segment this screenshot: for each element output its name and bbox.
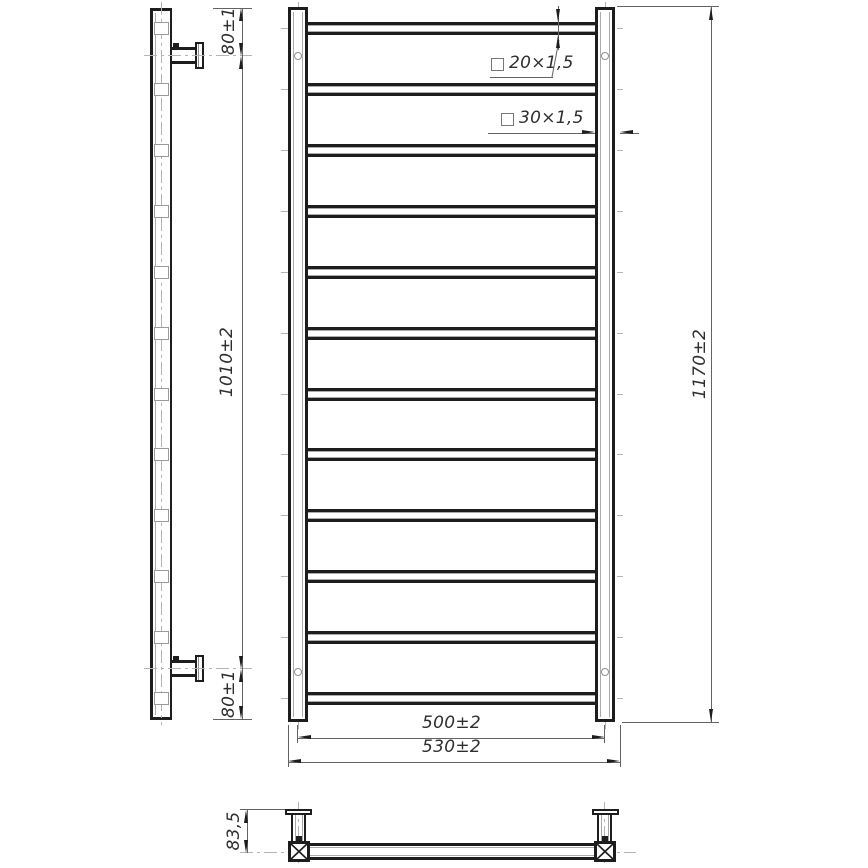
rung-section-square [154,388,169,401]
post-size-dim-line [488,133,595,134]
dim-arrow [239,56,243,69]
bottom-bracket-set-screw [173,656,179,660]
extension-line [622,722,719,723]
rung-bar [308,22,595,35]
mounting-hole [294,668,302,676]
rung-section-square [154,692,169,705]
bracket-stem [597,815,599,841]
right-post [595,7,615,722]
rung-tube-size-label: 20×1,5 [509,53,574,73]
dim-arrow [592,735,605,739]
square-section-icon [491,58,504,71]
dim-label-bracket-span: 1010±2 [217,317,237,407]
rung-section-square [154,570,169,583]
rung-section-square [154,83,169,96]
mounting-hole [294,52,302,60]
dim-label-overall-width: 530±2 [389,737,514,757]
dim-arrow [582,130,595,134]
post-section-square [288,841,310,862]
rung-bar [308,205,595,218]
bracket-stem [610,815,612,841]
height-dim-line [711,7,712,722]
rung-section-square [154,144,169,157]
side-rail-centerline [161,2,162,725]
dim-label-post-centers: 500±2 [389,713,514,733]
rung-bar [308,692,595,705]
rung-bar [308,266,595,279]
cross-brace-icon [594,841,616,862]
rung-section-square [154,22,169,35]
bracket-stem-line [608,815,609,841]
extension-line [617,6,719,7]
rung-section-square [154,205,169,218]
rung-section-square [154,448,169,461]
top-bracket-arm [172,47,196,50]
rung-bar [308,388,595,401]
bracket-stem [304,815,306,841]
dim-arrow [244,840,248,853]
cross-brace-icon [288,841,310,862]
dim-label-wall-offset: 83,5 [224,801,244,861]
rung-bar [308,448,595,461]
mounting-hole [601,668,609,676]
mounting-hole [601,52,609,60]
dim-arrow [556,35,560,48]
dim-arrow [244,810,248,823]
dim-arrow [288,759,301,763]
side-dim-line [242,8,243,719]
top-rail-tube [309,843,594,860]
bracket-stem-line [302,815,303,841]
dim-arrow [607,759,620,763]
rung-bar [308,570,595,583]
rung-section-square [154,266,169,279]
bottom-bracket-arm [172,674,196,677]
post-section-square [594,841,616,862]
post-tube-size-label: 30×1,5 [519,108,584,128]
rung-section-square [154,327,169,340]
dim-arrow [239,706,243,719]
dim-arrow [239,8,243,21]
dim-arrow [556,9,560,22]
left-post [288,7,308,722]
rung-bar [308,631,595,644]
square-section-icon [501,113,514,126]
extension-line [604,725,605,743]
overall-width-dim-line [288,762,620,763]
dim-arrow [709,7,713,20]
top-bracket-set-screw [173,43,179,47]
dim-arrow [239,43,243,56]
dim-label-overall-height: 1170±2 [690,318,710,410]
rung-bar [308,327,595,340]
dim-arrow [620,130,633,134]
dim-arrow [239,656,243,669]
bracket-stem [291,815,293,841]
rung-bar [308,509,595,522]
rung-section-square [154,509,169,522]
dim-label-bottom-offset: 80±1 [219,664,239,724]
dim-arrow [239,669,243,682]
rung-section-square [154,631,169,644]
dim-label-top-offset: 80±1 [219,1,239,61]
leader-line [544,36,564,81]
wall-flange [285,809,312,815]
rung-bar [308,144,595,157]
top-bracket-arm [172,61,196,64]
bottom-bracket-arm [172,660,196,663]
dim-arrow [298,735,311,739]
rung-bar [308,83,595,96]
drawing-canvas: 80±1 1010±2 80±1 20×1,5 30×1,5 [0,0,868,868]
dim-arrow [709,709,713,722]
extension-line [297,725,298,743]
